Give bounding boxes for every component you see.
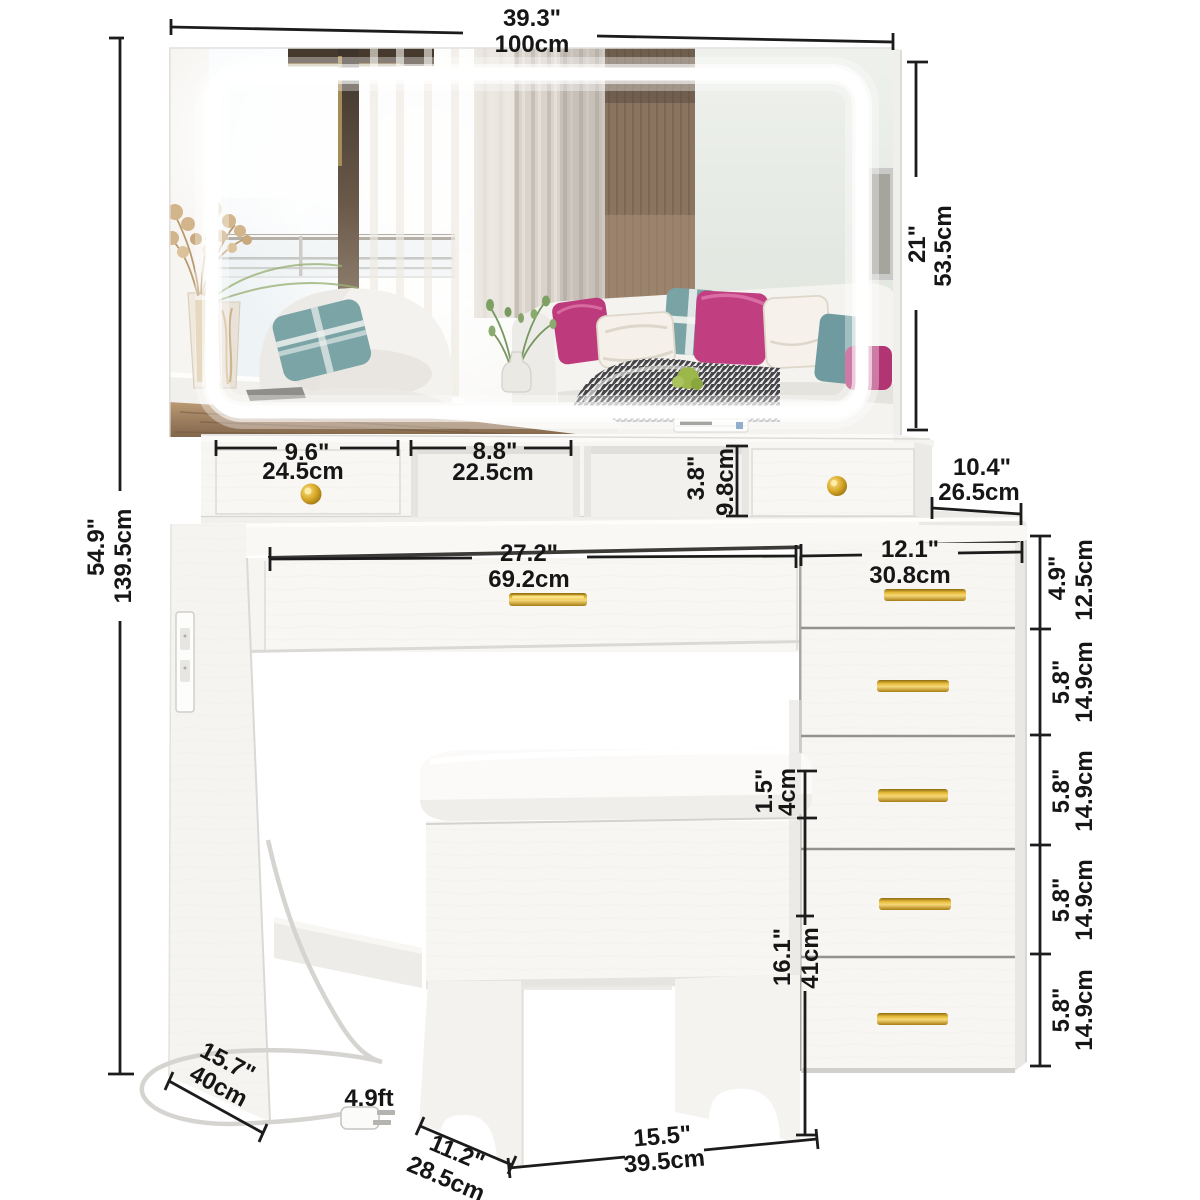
svg-text:12.1": 12.1"	[881, 536, 939, 563]
svg-text:14.9cm: 14.9cm	[1071, 969, 1098, 1050]
svg-text:9.8cm: 9.8cm	[712, 448, 739, 516]
svg-text:100cm: 100cm	[495, 31, 570, 58]
svg-text:4.9ft: 4.9ft	[344, 1085, 393, 1112]
svg-text:10.4": 10.4"	[953, 454, 1011, 481]
svg-text:14.9cm: 14.9cm	[1071, 641, 1098, 722]
svg-text:41cm: 41cm	[797, 927, 824, 988]
svg-text:4cm: 4cm	[774, 768, 801, 816]
svg-text:14.9cm: 14.9cm	[1071, 750, 1098, 831]
svg-text:12.5cm: 12.5cm	[1071, 539, 1098, 620]
svg-text:54.9": 54.9"	[83, 518, 110, 576]
svg-text:30.8cm: 30.8cm	[869, 562, 950, 589]
svg-text:22.5cm: 22.5cm	[452, 459, 533, 486]
svg-text:24.5cm: 24.5cm	[262, 458, 343, 485]
svg-text:4.9": 4.9"	[1044, 556, 1071, 601]
svg-text:139.5cm: 139.5cm	[110, 509, 137, 604]
svg-text:14.9cm: 14.9cm	[1071, 859, 1098, 940]
svg-text:27.2": 27.2"	[500, 540, 558, 567]
svg-text:53.5cm: 53.5cm	[930, 205, 957, 286]
svg-text:3.8": 3.8"	[683, 456, 710, 501]
svg-text:39.3": 39.3"	[503, 5, 561, 32]
svg-text:21": 21"	[904, 225, 931, 263]
svg-text:69.2cm: 69.2cm	[488, 566, 569, 593]
svg-text:26.5cm: 26.5cm	[938, 479, 1019, 506]
svg-text:16.1": 16.1"	[769, 928, 796, 986]
